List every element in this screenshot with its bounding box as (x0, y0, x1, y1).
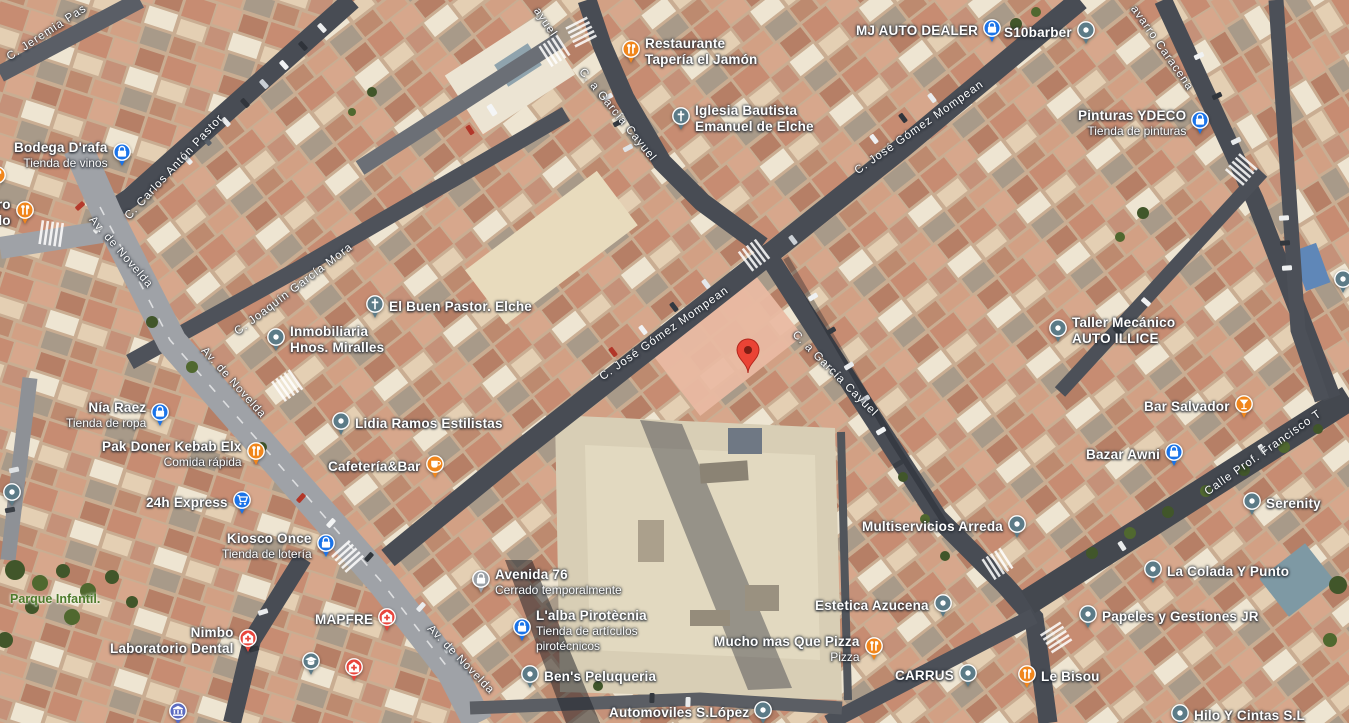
poi-category: Tienda de pinturas (1087, 124, 1186, 138)
labels-layer: C. Jeremia PasC. Carlos Antón PastorAv. … (0, 0, 1349, 723)
poi-text: Lidia Ramos Estilistas (355, 416, 503, 432)
bank-icon (169, 702, 187, 723)
poi-unlabeled-school[interactable] (302, 652, 320, 676)
poi-category: Tienda de vinos (23, 156, 107, 170)
hospital-icon (239, 629, 257, 653)
poi-name: Bazar Awni (1086, 447, 1160, 463)
poi-category: Comida rápida (164, 455, 242, 469)
poi-text: Cafetería&Bar (328, 459, 421, 475)
poi-inmobiliaria-hnos-miralles[interactable]: InmobiliariaHnos. Miralles (267, 324, 384, 356)
poi-name: La Colada Y Punto (1167, 564, 1289, 580)
poi-text: Papeles y Gestiones JR (1102, 609, 1259, 625)
poi-name: Rollo (0, 213, 11, 229)
poi-text: Bazar Awni (1086, 447, 1160, 463)
poi-mucho-mas-que-pizza[interactable]: Mucho mas Que PizzaPizza (714, 634, 883, 665)
poi-cafeteria-bar[interactable]: Cafetería&Bar (328, 455, 444, 479)
shopping-bag-icon (151, 403, 169, 427)
poi-name: Kiosco Once (227, 531, 312, 547)
poi-text: L'alba PirotècniaTienda de artículospiro… (536, 608, 647, 653)
generic-place-icon (1077, 21, 1095, 45)
shopping-bag-icon (1165, 443, 1183, 467)
street-label-jose-gomez-mompean-ne: C. José Gómez Mompean (853, 78, 987, 177)
poi-name: MJ AUTO DEALER (856, 23, 978, 39)
shopping-bag-icon (472, 570, 490, 594)
restaurant-icon (16, 201, 34, 225)
poi-name: Bar Salvador (1144, 399, 1230, 415)
poi-multiservicios-arreda[interactable]: Multiservicios Arreda (862, 515, 1026, 539)
bar-icon (1235, 395, 1253, 419)
poi-name: Iglesia Bautista (695, 103, 797, 119)
poi-mapfre[interactable]: MAPFRE (315, 608, 396, 632)
poi-unlabeled-health[interactable] (345, 658, 363, 682)
poi-pak-doner-kebab-elx[interactable]: Pak Doner Kebab ElxComida rápida (102, 439, 265, 470)
destination-pin[interactable] (735, 338, 761, 379)
generic-place-icon (959, 664, 977, 688)
area-label-parque-infantil: Parque Infantil. (10, 592, 100, 606)
poi-name: Multiservicios Arreda (862, 519, 1003, 535)
poi-automoviles-s-lopez[interactable]: Automoviles S.López (609, 701, 772, 723)
shopping-bag-icon (113, 143, 131, 167)
poi-name: Taller Mecánico (1072, 315, 1175, 331)
poi-text: Estetica Azucena (815, 598, 929, 614)
poi-bar-salvador[interactable]: Bar Salvador (1144, 395, 1253, 419)
poi-name: Emanuel de Elche (695, 119, 814, 135)
poi-nimbo-laboratorio-dental[interactable]: NimboLaboratorio Dental (110, 625, 257, 657)
poi-text: MJ AUTO DEALER (856, 23, 978, 39)
generic-place-icon (1334, 270, 1349, 294)
shopping-bag-icon (1191, 111, 1209, 135)
generic-place-icon (754, 701, 772, 723)
poi-el-buen-pastor-elche[interactable]: El Buen Pastor. Elche (366, 295, 532, 319)
poi-pinturas-ydeco[interactable]: Pinturas YDECOTienda de pinturas (1078, 108, 1209, 139)
poi-name: Nía Raez (88, 400, 146, 416)
poi-category: Tienda de lotería (222, 547, 312, 561)
poi-text: eroRollo (0, 197, 11, 229)
poi-mj-auto-dealer[interactable]: MJ AUTO DEALER (856, 19, 1001, 43)
poi-la-colada-y-punto[interactable]: La Colada Y Punto (1144, 560, 1289, 584)
poi-hilo-y-cintas[interactable]: Hilo Y Cintas S.L (1171, 704, 1305, 723)
shopping-bag-icon (317, 534, 335, 558)
poi-name: Cafetería&Bar (328, 459, 421, 475)
google-maps-satellite-view[interactable]: C. Jeremia PasC. Carlos Antón PastorAv. … (0, 0, 1349, 723)
church-icon (672, 107, 690, 131)
poi-avenida-76[interactable]: Avenida 76Cerrado temporalmente (472, 567, 622, 598)
poi-serenity[interactable]: Serenity (1243, 492, 1321, 516)
poi-text: Hilo Y Cintas S.L (1194, 708, 1305, 723)
school-icon (302, 652, 320, 676)
poi-bens-peluqueria[interactable]: Ben's Peluqueria (521, 665, 656, 689)
poi-text: Bodega D'rafaTienda de vinos (14, 140, 108, 171)
generic-place-icon (267, 328, 285, 352)
poi-text: Nía RaezTienda de ropa (66, 400, 146, 431)
generic-place-icon (332, 412, 350, 436)
poi-name: Lidia Ramos Estilistas (355, 416, 503, 432)
poi-text: NimboLaboratorio Dental (110, 625, 234, 657)
poi-carrus[interactable]: CARRUS (895, 664, 977, 688)
street-label-calle-prof-francisco: Calle Prof. Francisco T (1203, 408, 1324, 498)
street-label-jose-gomez-mompean-c: C. José Gómez Mompean (598, 284, 732, 383)
poi-name: Le Bisou (1041, 669, 1100, 685)
street-label-garcia-cayuel-s: C. a García Cayuel (790, 329, 880, 419)
poi-text: RestauranteTapería el Jamón (645, 36, 758, 68)
cafe-icon (426, 455, 444, 479)
poi-text: Automoviles S.López (609, 705, 749, 721)
poi-text: La Colada Y Punto (1167, 564, 1289, 580)
generic-place-icon (1171, 704, 1189, 723)
poi-kiosco-once[interactable]: Kiosco OnceTienda de lotería (222, 531, 335, 562)
poi-s10barber[interactable]: S10barber (1004, 21, 1095, 45)
poi-text: Iglesia BautistaEmanuel de Elche (695, 103, 814, 135)
poi-name: Mucho mas Que Pizza (714, 634, 860, 650)
poi-name: Hilo Y Cintas S.L (1194, 708, 1305, 723)
poi-name: El Buen Pastor. Elche (389, 299, 532, 315)
poi-text: Kiosco OnceTienda de lotería (222, 531, 312, 562)
generic-place-icon (1144, 560, 1162, 584)
poi-name: Pinturas YDECO (1078, 108, 1186, 124)
poi-estetica-azucena[interactable]: Estetica Azucena (815, 594, 952, 618)
shopping-cart-icon (233, 491, 251, 515)
poi-name: Serenity (1266, 496, 1321, 512)
street-label-av-de-novelda-3: Av. de Novelda (425, 623, 497, 697)
poi-bodega-drafa[interactable]: Bodega D'rafaTienda de vinos (14, 140, 131, 171)
restaurant-icon (622, 40, 640, 64)
poi-name: Tapería el Jamón (645, 52, 758, 68)
street-label-navarro-caracena: avarro Caracena (1128, 4, 1196, 93)
poi-text: Multiservicios Arreda (862, 519, 1003, 535)
poi-name: Estetica Azucena (815, 598, 929, 614)
poi-name: Pak Doner Kebab Elx (102, 439, 242, 455)
poi-papeles-y-gestiones-jr[interactable]: Papeles y Gestiones JR (1079, 605, 1259, 629)
poi-name: 24h Express (146, 495, 228, 511)
poi-name: Restaurante (645, 36, 725, 52)
restaurant-icon (1018, 665, 1036, 689)
generic-place-icon (1079, 605, 1097, 629)
poi-lidia-ramos-estilistas[interactable]: Lidia Ramos Estilistas (332, 412, 503, 436)
poi-name: ero (0, 197, 11, 213)
poi-text: Mucho mas Que PizzaPizza (714, 634, 860, 665)
poi-name: Papeles y Gestiones JR (1102, 609, 1259, 625)
street-label-garcia-cayuel-partial: ayuel (531, 6, 559, 40)
street-label-garcia-cayuel-n: C. a García Cayuel (576, 66, 658, 164)
generic-place-icon (1008, 515, 1026, 539)
generic-place-icon (1243, 492, 1261, 516)
poi-text: CARRUS (895, 668, 954, 684)
poi-unlabeled-place-e[interactable] (1334, 270, 1349, 294)
poi-lalba-pirotecnia[interactable]: L'alba PirotècniaTienda de artículospiro… (513, 608, 647, 653)
poi-le-bisou[interactable]: Le Bisou (1018, 665, 1100, 689)
street-label-av-de-novelda-2: Av. de Novelda (199, 345, 269, 421)
poi-name: Laboratorio Dental (110, 641, 234, 657)
poi-bazar-awni[interactable]: Bazar Awni (1086, 443, 1183, 467)
poi-text: InmobiliariaHnos. Miralles (290, 324, 384, 356)
poi-name: Bodega D'rafa (14, 140, 108, 156)
poi-text: MAPFRE (315, 612, 373, 628)
poi-taller-mecanico-auto-illice[interactable]: Taller MecánicoAUTO ILLICE (1049, 315, 1175, 347)
hospital-icon (345, 658, 363, 682)
poi-name: Ben's Peluqueria (544, 669, 656, 685)
poi-unlabeled-place-w[interactable] (3, 483, 21, 507)
poi-name: S10barber (1004, 25, 1072, 41)
poi-restaurante-taperia-el-jamon[interactable]: RestauranteTapería el Jamón (622, 36, 758, 68)
poi-text: Le Bisou (1041, 669, 1100, 685)
poi-text: El Buen Pastor. Elche (389, 299, 532, 315)
poi-text: 24h Express (146, 495, 228, 511)
poi-text: Ben's Peluqueria (544, 669, 656, 685)
poi-category: pirotécnicos (536, 639, 600, 653)
church-icon (366, 295, 384, 319)
street-label-av-de-novelda-1: Av. de Novelda (86, 214, 155, 291)
generic-place-icon (1049, 319, 1067, 343)
poi-nia-raez[interactable]: Nía RaezTienda de ropa (66, 400, 169, 431)
poi-iglesia-bautista-emanuel[interactable]: Iglesia BautistaEmanuel de Elche (672, 103, 814, 135)
restaurant-icon (0, 166, 6, 190)
poi-24h-express[interactable]: 24h Express (146, 491, 251, 515)
poi-category: Tienda de artículos (536, 624, 638, 638)
generic-place-icon (521, 665, 539, 689)
street-label-carlos-anton-pastor: C. Carlos Antón Pastor (123, 112, 227, 222)
poi-cropped-poi-left[interactable] (0, 166, 6, 190)
poi-text: S10barber (1004, 25, 1072, 41)
poi-name: Hnos. Miralles (290, 340, 384, 356)
poi-category: Pizza (830, 650, 859, 664)
restaurant-icon (865, 637, 883, 661)
poi-category: Cerrado temporalmente (495, 583, 622, 597)
poi-unlabeled-bank[interactable] (169, 702, 187, 723)
poi-text: Bar Salvador (1144, 399, 1230, 415)
poi-text: Avenida 76Cerrado temporalmente (495, 567, 622, 598)
poi-name: AUTO ILLICE (1072, 331, 1159, 347)
shopping-bag-icon (513, 618, 531, 642)
poi-category: Tienda de ropa (66, 416, 146, 430)
poi-text: Taller MecánicoAUTO ILLICE (1072, 315, 1175, 347)
poi-name: MAPFRE (315, 612, 373, 628)
street-label-jeremia-pastor: C. Jeremia Pas (5, 3, 89, 64)
shopping-bag-icon (983, 19, 1001, 43)
restaurant-icon (247, 442, 265, 466)
poi-name: Avenida 76 (495, 567, 568, 583)
poi-name: CARRUS (895, 668, 954, 684)
poi-asadero-pollo-partial[interactable]: eroRollo (0, 197, 34, 229)
generic-place-icon (3, 483, 21, 507)
poi-text: Pinturas YDECOTienda de pinturas (1078, 108, 1186, 139)
poi-text: Pak Doner Kebab ElxComida rápida (102, 439, 242, 470)
poi-name: Nimbo (191, 625, 234, 641)
poi-text: Serenity (1266, 496, 1321, 512)
hospital-icon (378, 608, 396, 632)
poi-name: L'alba Pirotècnia (536, 608, 647, 624)
poi-name: Automoviles S.López (609, 705, 749, 721)
generic-place-icon (934, 594, 952, 618)
poi-name: Inmobiliaria (290, 324, 368, 340)
